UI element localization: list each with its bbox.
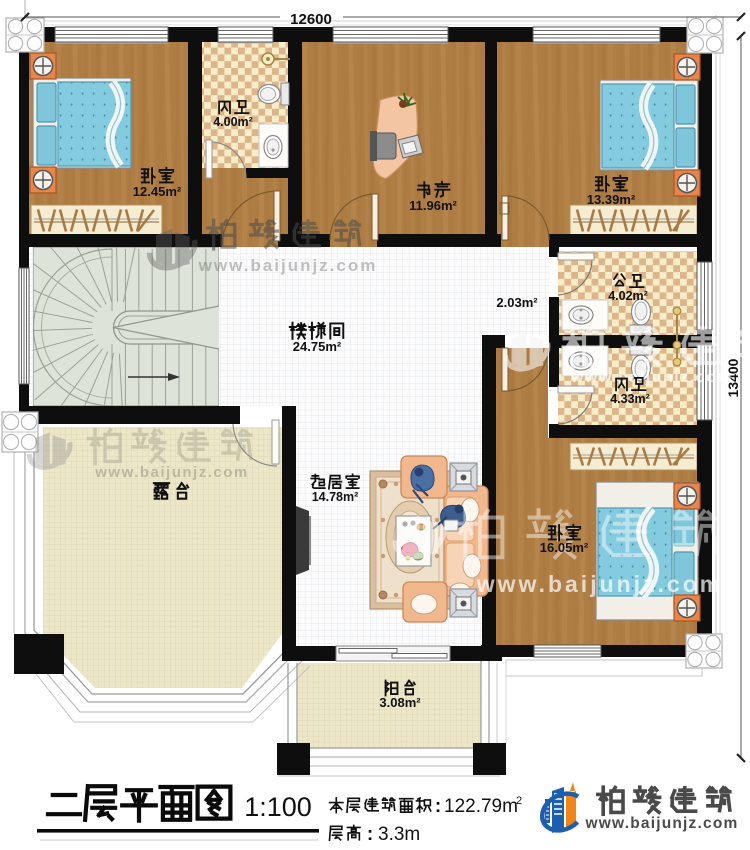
svg-text:4.02m²: 4.02m²: [608, 289, 648, 303]
svg-text:www.baijunjz.com: www.baijunjz.com: [94, 464, 248, 481]
svg-text:www.baijunjz.com: www.baijunjz.com: [198, 256, 378, 275]
svg-text:www.baijunjz.com: www.baijunjz.com: [476, 571, 724, 597]
svg-text:13.39m²: 13.39m²: [587, 192, 636, 207]
svg-text:2.03m²: 2.03m²: [496, 295, 538, 310]
svg-text:24.75m²: 24.75m²: [293, 339, 342, 354]
svg-text:16.05m²: 16.05m²: [540, 540, 589, 555]
svg-text:2: 2: [516, 795, 522, 807]
svg-text::: :: [367, 824, 373, 845]
svg-text:12600: 12600: [290, 11, 332, 28]
svg-text:12.45m²: 12.45m²: [133, 184, 182, 199]
svg-text:4.00m²: 4.00m²: [213, 115, 253, 129]
svg-text::: :: [435, 796, 441, 817]
svg-text:14.78m²: 14.78m²: [312, 490, 359, 504]
svg-text:122.79m: 122.79m: [444, 796, 518, 817]
svg-text:3.3m: 3.3m: [378, 824, 420, 845]
svg-text:11.96m²: 11.96m²: [409, 198, 457, 213]
svg-text:3.08m²: 3.08m²: [379, 695, 421, 710]
svg-text:www.baijunjz.com: www.baijunjz.com: [570, 369, 733, 386]
svg-text:www.baijunjz.com: www.baijunjz.com: [585, 815, 739, 832]
svg-text:1:100: 1:100: [244, 792, 312, 822]
svg-text:4.33m²: 4.33m²: [610, 392, 650, 406]
